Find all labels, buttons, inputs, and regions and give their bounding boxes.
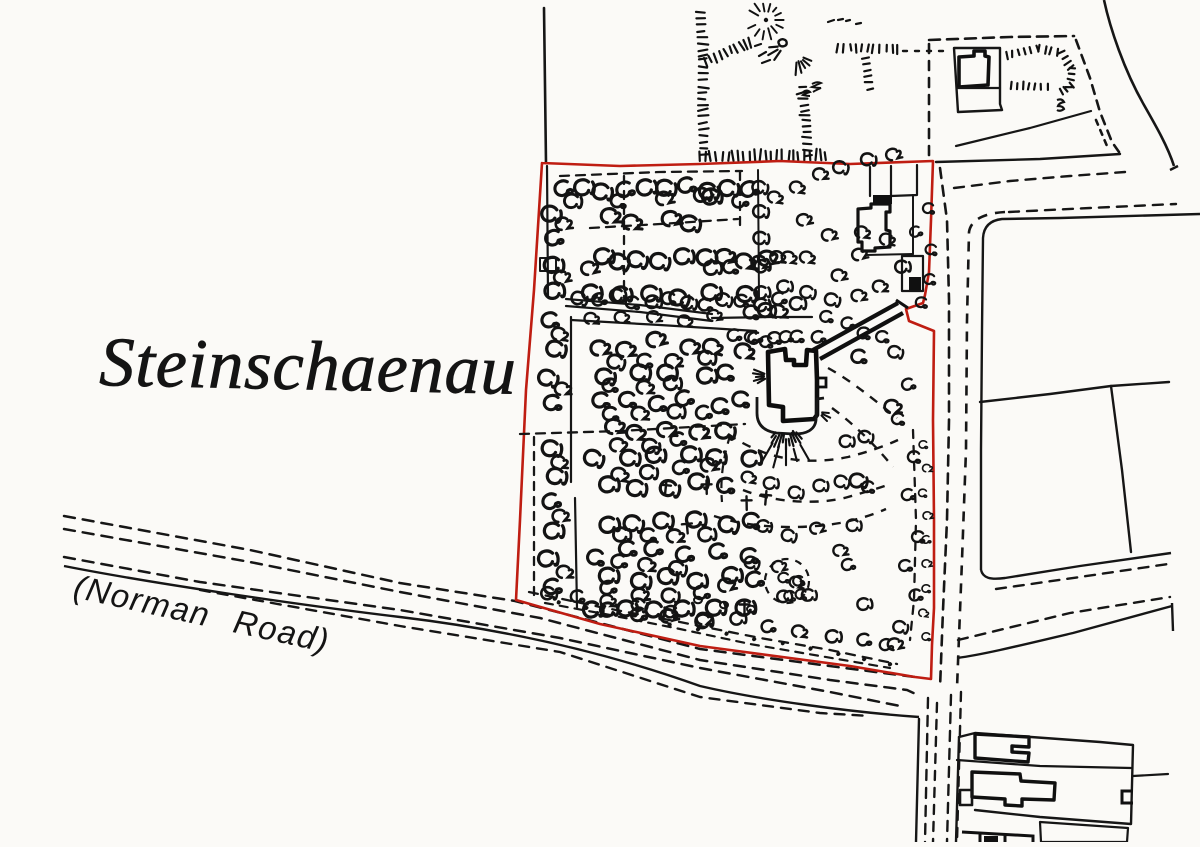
svg-text:Steinschaenau: Steinschaenau bbox=[99, 324, 518, 410]
